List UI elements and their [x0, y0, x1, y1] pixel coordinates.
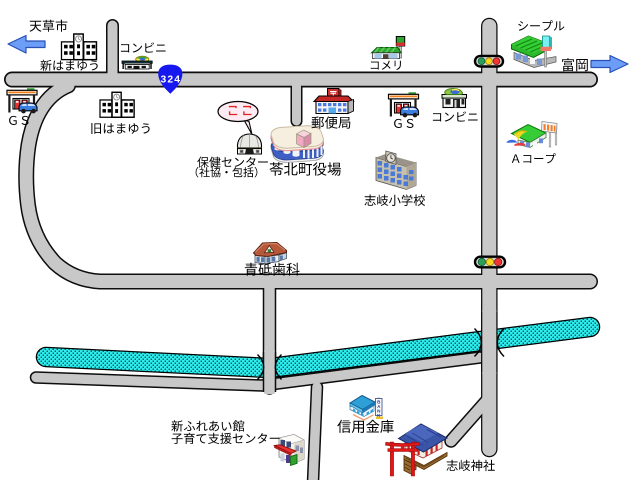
svg-text:324: 324: [161, 74, 181, 85]
